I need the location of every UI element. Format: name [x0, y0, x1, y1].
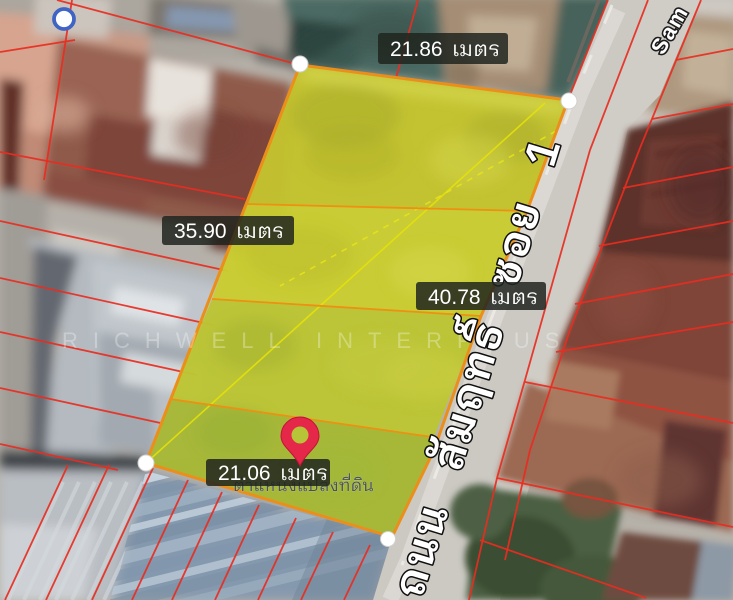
svg-text:21.06: 21.06 — [218, 462, 271, 485]
svg-text:21.86: 21.86 — [390, 38, 443, 61]
svg-text:40.78: 40.78 — [428, 286, 481, 309]
svg-text:35.90: 35.90 — [174, 220, 227, 243]
